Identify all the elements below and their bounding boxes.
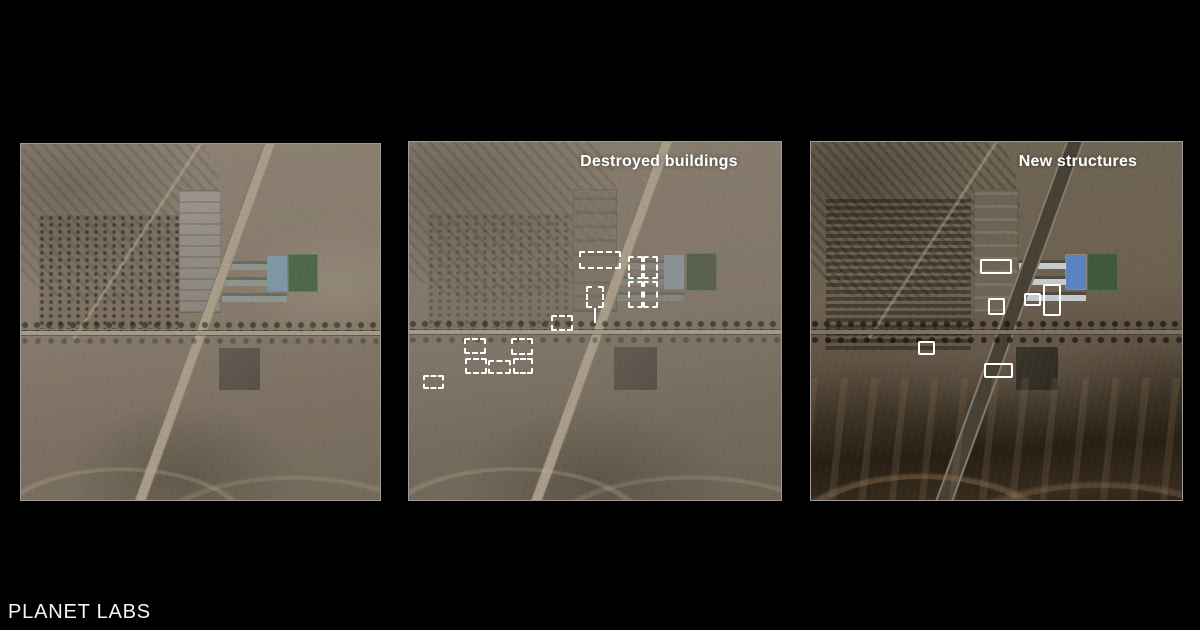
new-structure-marker xyxy=(1024,293,1041,306)
new-structure-marker xyxy=(918,341,935,355)
destroyed-building-marker xyxy=(643,281,658,308)
planet-labs-credit: PLANET LABS xyxy=(8,601,151,624)
destroyed-building-marker xyxy=(586,286,604,308)
destroyed-building-marker xyxy=(423,375,444,389)
destroyed-building-marker xyxy=(643,256,658,279)
new-structure-marker xyxy=(980,259,1012,274)
image-grain xyxy=(21,144,380,500)
composite-graphic: Destroyed buildings New structures PLANE… xyxy=(0,0,1200,630)
satellite-image-new-structures: New structures xyxy=(810,141,1183,501)
destroyed-building-marker xyxy=(465,358,487,374)
marker-leader-line xyxy=(594,308,596,323)
destroyed-building-marker xyxy=(511,338,533,355)
satellite-image-destroyed-buildings: Destroyed buildings xyxy=(408,141,782,501)
destroyed-building-marker xyxy=(628,281,643,308)
new-structure-marker xyxy=(988,298,1005,315)
destroyed-building-marker xyxy=(628,256,643,279)
destroyed-building-marker xyxy=(488,360,511,374)
new-structure-marker xyxy=(1043,284,1061,316)
destroyed-building-markers xyxy=(409,142,781,500)
destroyed-building-marker xyxy=(551,315,573,331)
new-structure-markers xyxy=(811,142,1182,500)
destroyed-building-marker xyxy=(579,251,621,269)
satellite-image-before xyxy=(20,143,381,501)
destroyed-building-marker xyxy=(513,358,533,374)
new-structure-marker xyxy=(984,363,1013,378)
destroyed-building-marker xyxy=(464,338,486,354)
